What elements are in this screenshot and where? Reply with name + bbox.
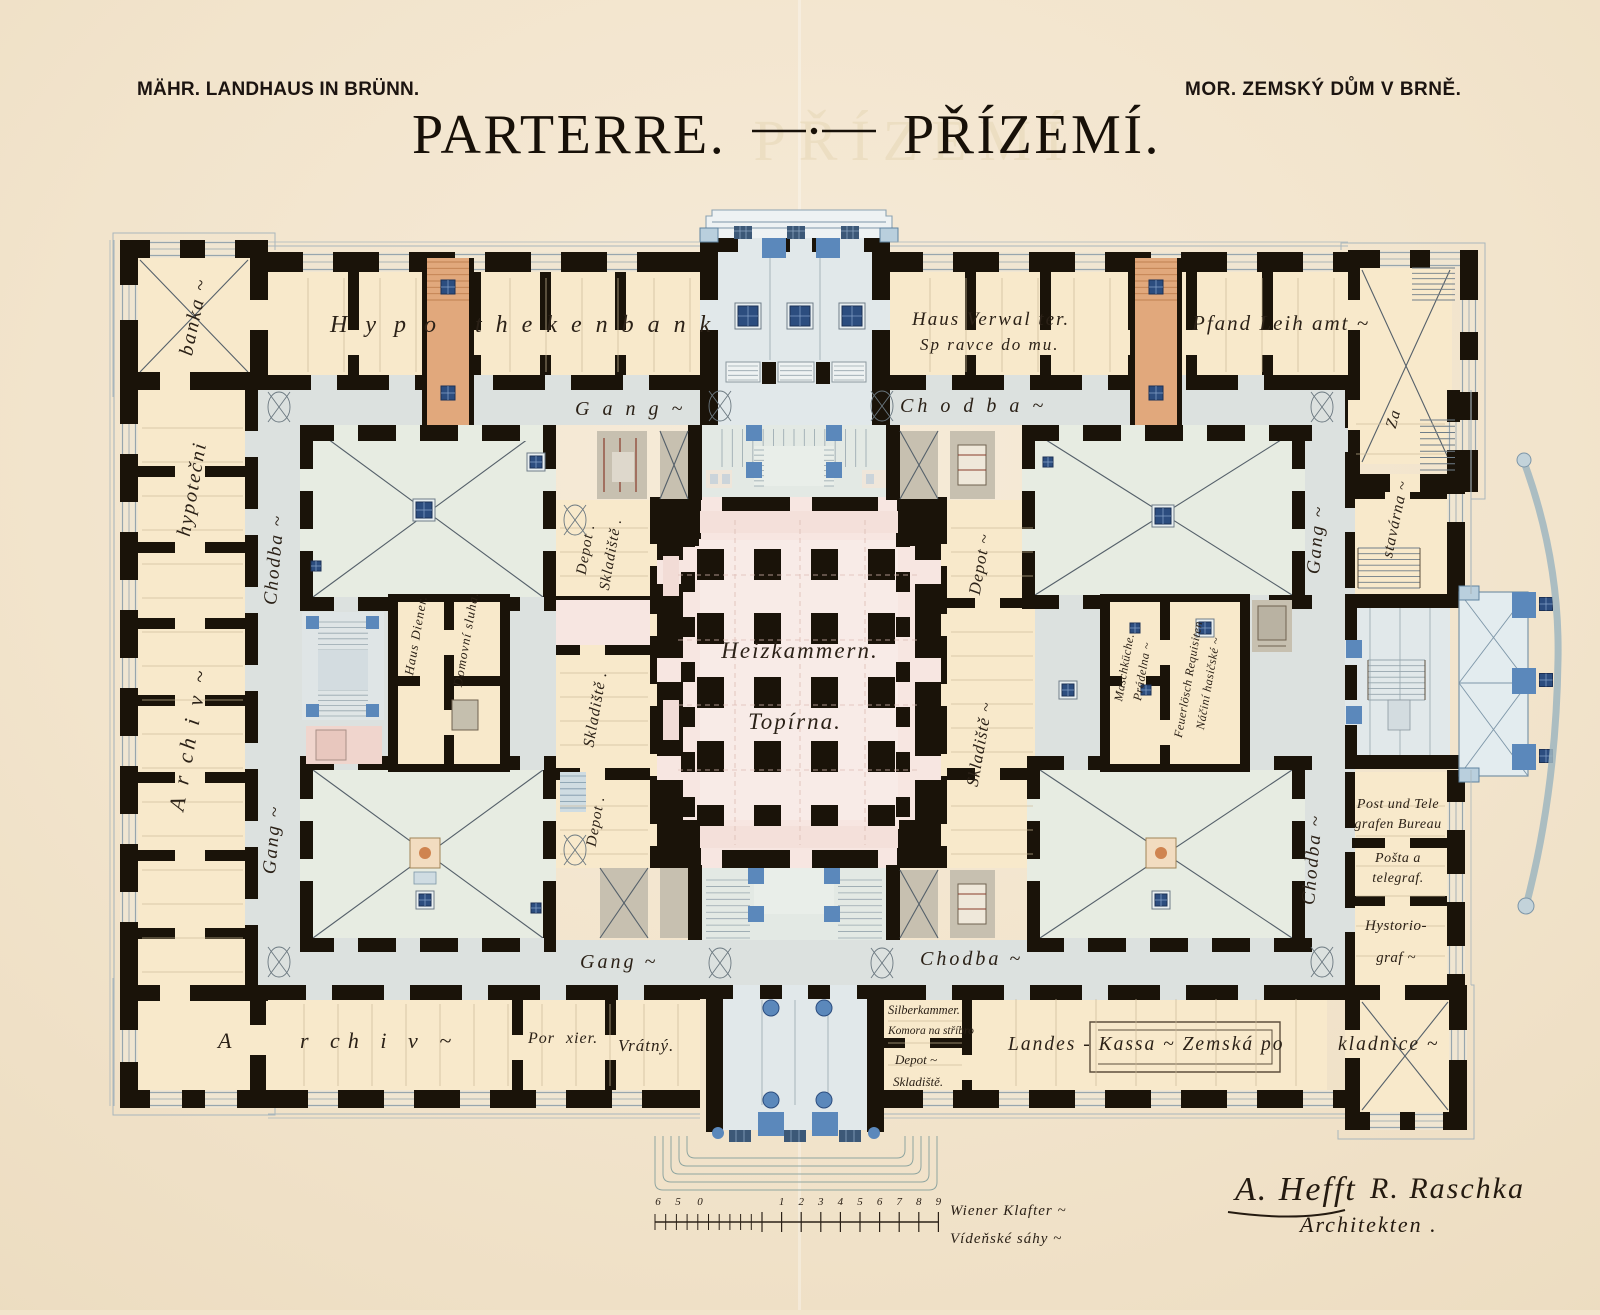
svg-text:MOR. ZEMSKÝ DŮM V BRNĚ.: MOR. ZEMSKÝ DŮM V BRNĚ. bbox=[1185, 77, 1461, 100]
svg-text:graf ~: graf ~ bbox=[1376, 950, 1416, 966]
svg-text:2: 2 bbox=[798, 1196, 804, 1208]
svg-text:t h e k e n b a n k: t h e k e n b a n k bbox=[475, 312, 714, 338]
svg-text:6: 6 bbox=[877, 1196, 883, 1208]
svg-text:PŘÍZEMÍ.: PŘÍZEMÍ. bbox=[903, 104, 1161, 166]
svg-text:Silberkammer.: Silberkammer. bbox=[888, 1003, 960, 1017]
svg-text:8: 8 bbox=[916, 1196, 922, 1208]
svg-text:5: 5 bbox=[857, 1196, 863, 1208]
svg-text:Post und Tele: Post und Tele bbox=[1356, 797, 1439, 812]
svg-text:MÄHR. LANDHAUS IN BRÜNN.: MÄHR. LANDHAUS IN BRÜNN. bbox=[137, 79, 419, 100]
svg-text:Hystorio-: Hystorio- bbox=[1364, 918, 1427, 934]
svg-text:Ch o d b a ~: Ch o d b a ~ bbox=[900, 395, 1047, 417]
svg-text:7: 7 bbox=[896, 1196, 902, 1208]
svg-text:Vídeňské sáhy ~: Vídeňské sáhy ~ bbox=[950, 1231, 1062, 1247]
svg-text:Chodba ~: Chodba ~ bbox=[920, 948, 1023, 970]
svg-text:5: 5 bbox=[675, 1196, 681, 1208]
svg-text:Pfand Leih amt ~: Pfand Leih amt ~ bbox=[1191, 311, 1370, 335]
svg-text:Topírna.: Topírna. bbox=[748, 709, 842, 734]
svg-text:telegraf.: telegraf. bbox=[1372, 871, 1424, 886]
svg-text:Pošta a: Pošta a bbox=[1374, 851, 1421, 866]
svg-text:r ch i v ~: r ch i v ~ bbox=[300, 1028, 459, 1053]
svg-text:grafen Bureau: grafen Bureau bbox=[1354, 817, 1441, 832]
svg-text:Wiener Klafter ~: Wiener Klafter ~ bbox=[950, 1203, 1067, 1219]
svg-text:xier.: xier. bbox=[565, 1030, 598, 1047]
svg-text:Vrátný.: Vrátný. bbox=[618, 1036, 674, 1055]
svg-text:Depot ~: Depot ~ bbox=[894, 1052, 937, 1067]
svg-text:H y p o: H y p o bbox=[329, 312, 442, 338]
svg-text:A. Hefft: A. Hefft bbox=[1233, 1171, 1357, 1208]
svg-text:R. Raschka: R. Raschka bbox=[1369, 1172, 1525, 1205]
svg-text:1: 1 bbox=[779, 1196, 785, 1208]
svg-text:PARTERRE.: PARTERRE. bbox=[412, 104, 726, 166]
svg-text:3: 3 bbox=[817, 1196, 824, 1208]
svg-text:Gang ~: Gang ~ bbox=[580, 951, 658, 973]
svg-text:Skladiště.: Skladiště. bbox=[893, 1074, 943, 1089]
svg-text:Por: Por bbox=[527, 1030, 555, 1047]
svg-text:Heizkammern.: Heizkammern. bbox=[720, 638, 879, 663]
svg-text:Architekten .: Architekten . bbox=[1298, 1212, 1438, 1237]
svg-text:6: 6 bbox=[655, 1196, 661, 1208]
svg-text:Sp ravce do mu.: Sp ravce do mu. bbox=[920, 335, 1060, 354]
svg-text:4: 4 bbox=[838, 1196, 844, 1208]
svg-text:G a n g ~: G a n g ~ bbox=[575, 398, 686, 420]
svg-text:kladnice ~: kladnice ~ bbox=[1338, 1034, 1439, 1055]
svg-text:Landes - Kassa ~ Zemská po: Landes - Kassa ~ Zemská po bbox=[1007, 1034, 1285, 1055]
svg-text:Komora na stříbro: Komora na stříbro bbox=[887, 1025, 974, 1037]
svg-text:0: 0 bbox=[697, 1196, 703, 1208]
svg-text:9: 9 bbox=[936, 1196, 942, 1208]
svg-text:Haus Verwal ter.: Haus Verwal ter. bbox=[911, 309, 1070, 330]
svg-text:A: A bbox=[216, 1028, 233, 1053]
